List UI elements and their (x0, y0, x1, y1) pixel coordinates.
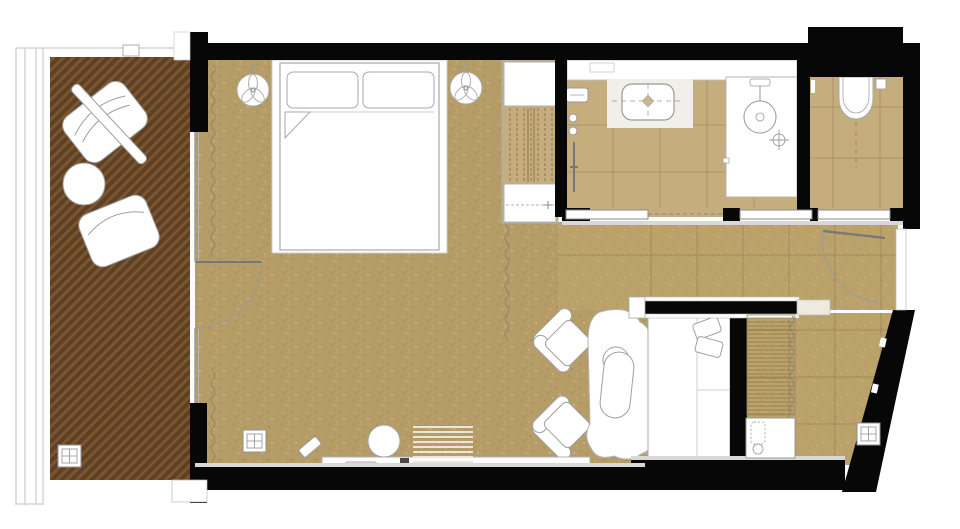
wall-nook-top (645, 301, 797, 314)
daybed (648, 315, 730, 458)
shower-door-handle (723, 158, 729, 163)
wc-wall-nib (811, 80, 815, 93)
floor-plan-drawing (0, 0, 960, 529)
dressing-floor-outlet (857, 423, 880, 445)
wall-top-left-stub (190, 32, 208, 132)
washbasin (612, 84, 684, 120)
minibar-cabinet (746, 418, 795, 458)
entry-door-sill (896, 229, 906, 310)
wall-corridor-pier-2 (723, 208, 740, 221)
slatted-bench (413, 427, 473, 467)
round-pouf (368, 425, 400, 457)
sliding-door-wc (818, 210, 890, 219)
wall-bottom-main (193, 467, 645, 490)
living-floor-outlet (243, 430, 266, 452)
floor-plan-canvas (0, 0, 960, 529)
sliding-door-middle (740, 210, 812, 219)
wall-bottom-right (631, 460, 845, 490)
vanity-tray (590, 63, 614, 72)
trim-corridor-sill (562, 221, 903, 225)
dressing-opening-threshold (797, 300, 830, 315)
outdoor-round-table (63, 163, 105, 205)
wall-hung-toilet (839, 77, 873, 119)
shower-head (744, 101, 776, 133)
wardrobe-closet (502, 60, 558, 223)
shower-valve (750, 79, 770, 86)
wall-hook-2 (569, 127, 577, 135)
wall-bath-wc (797, 57, 810, 217)
balcony-sill-lower (172, 480, 207, 502)
wardrobe-top-shelf (504, 62, 556, 106)
railing-bracket (123, 45, 139, 56)
nook-wall-end-cap (629, 297, 645, 318)
trim-nook-top (629, 297, 799, 301)
wall-hook-1 (569, 114, 577, 122)
plumbing-shaft (808, 27, 903, 77)
trim-bottom-main (195, 463, 645, 467)
sliding-door-bathroom (566, 210, 648, 219)
bed-pillow-right (363, 72, 434, 108)
facade-notch-upper (174, 32, 190, 60)
wall-closet-bath (555, 57, 567, 217)
wall-nook-right (730, 301, 747, 461)
chaise-longue (587, 310, 658, 460)
flush-plate (876, 79, 886, 89)
wall-corridor-pier-4 (890, 208, 903, 221)
balcony-floor-outlet (58, 445, 81, 467)
dressing-shelves (747, 315, 795, 415)
wall-right-upper (903, 43, 920, 229)
double-bed (272, 60, 447, 253)
walk-in-shower (723, 77, 797, 197)
bed-pillow-left (287, 72, 358, 108)
trim-bottom-right (631, 456, 845, 460)
